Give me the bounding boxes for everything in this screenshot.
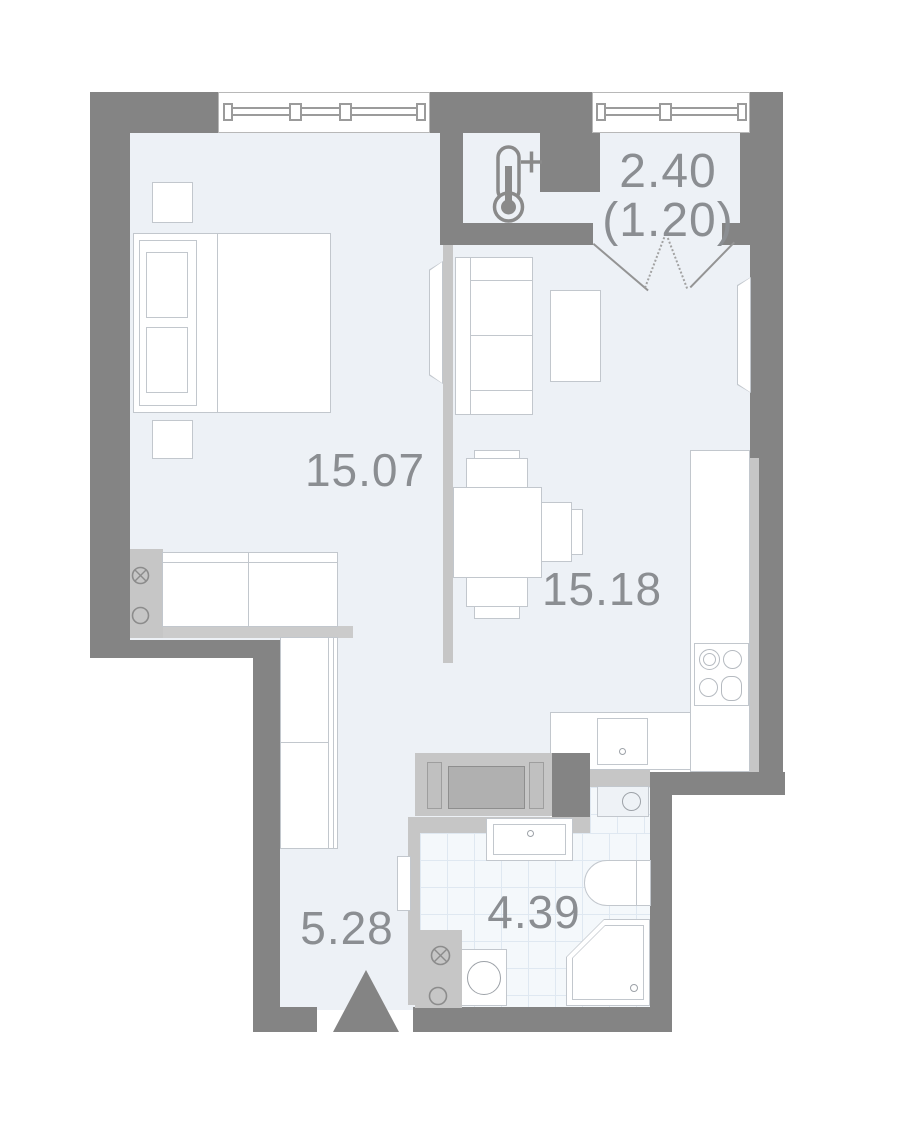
washing-machine-drum (467, 961, 501, 995)
pillow (146, 327, 188, 393)
chair (541, 502, 572, 562)
shower-drain-dot (630, 984, 638, 992)
sofa-armrest-line (470, 390, 533, 391)
bathroom-door-leaf (397, 856, 411, 911)
window-end-cap (223, 103, 233, 121)
wall-bottom-right (413, 1007, 672, 1032)
nightstand (152, 182, 193, 223)
window-mullion (659, 103, 672, 121)
chair-back (474, 606, 520, 619)
tv-console-top (448, 766, 525, 809)
sofa-armrest-line (470, 280, 533, 281)
room-area-label-living: 15.18 (542, 562, 662, 616)
kitchen-sink (597, 718, 648, 765)
kitchenette-counter-divider (248, 552, 249, 627)
outside-mask (0, 658, 253, 1133)
radiator (429, 261, 443, 384)
towel-dryer-circle (622, 792, 641, 811)
wall-bathroom-right (650, 795, 672, 1032)
sink-faucet-dot (527, 830, 534, 837)
tv-console-side (427, 762, 442, 809)
burner (699, 678, 718, 697)
kitchen-wall-lining (750, 458, 759, 772)
room-area-label-bathroom: 4.39 (487, 885, 581, 939)
floor-plan: 15.07 15.18 5.28 4.39 2.40 (1.20) (0, 0, 900, 1133)
duct-shaft (552, 753, 590, 817)
chair (466, 458, 528, 488)
kitchen-counter-right (690, 450, 750, 772)
balcony-window (592, 92, 750, 133)
crossed-circle-vent-icon (430, 945, 451, 966)
thermometer-plus-icon (483, 144, 545, 226)
circle-outlet-icon (428, 986, 448, 1006)
wall-nook-corner (540, 133, 600, 192)
kitchenette-counter (162, 552, 338, 627)
wardrobe-divider (328, 637, 329, 849)
wall-left (90, 92, 130, 658)
kitchen-faucet-dot (619, 748, 626, 755)
burner (703, 653, 716, 666)
nightstand (152, 420, 193, 459)
bathroom-sink-basin (493, 824, 566, 855)
chair (466, 577, 528, 607)
burner (723, 650, 742, 669)
burner (721, 676, 742, 701)
window-glazing-line (601, 107, 743, 109)
balcony-area-full: 2.40 (619, 145, 716, 198)
window-glazing-line (229, 114, 421, 116)
kitchenette-counter-edge (162, 562, 338, 563)
window-end-cap (416, 103, 426, 121)
window-mullion (339, 103, 352, 121)
window-mullion (289, 103, 302, 121)
circle-outlet-icon (131, 606, 150, 625)
wardrobe-divider (333, 637, 334, 849)
toilet-bowl (584, 860, 638, 906)
wall-bottom-left (253, 1007, 317, 1032)
balcony-area-reduced: (1.20) (602, 194, 733, 247)
room-area-label-hallway: 5.28 (300, 901, 394, 955)
room-area-label-balcony: 2.40 (1.20) (602, 147, 733, 245)
window-end-cap (737, 103, 747, 121)
bed-blanket-line (217, 233, 218, 412)
pillow (146, 252, 188, 318)
wall-bedroom-bottom (90, 640, 255, 658)
partition-bedroom-living (443, 245, 453, 663)
room-area-label-bedroom: 15.07 (305, 443, 425, 497)
wardrobe-shelf-line (281, 742, 328, 743)
dining-table (453, 487, 542, 578)
toilet-tank (636, 860, 651, 906)
bedroom-window (218, 92, 430, 133)
crossed-circle-vent-icon (131, 566, 150, 585)
sofa-seat-line (470, 335, 533, 336)
wardrobe (280, 637, 338, 849)
entrance-arrow-icon (333, 970, 399, 1032)
wall-hallway-left (253, 640, 280, 1032)
window-end-cap (596, 103, 606, 121)
coffee-table (550, 290, 601, 382)
window-glazing-line (601, 114, 743, 116)
tv-console-side (529, 762, 544, 809)
wall-nook-bottom (455, 223, 593, 245)
wall-top-middle (430, 92, 592, 133)
window-glazing-line (229, 107, 421, 109)
radiator (737, 277, 751, 393)
